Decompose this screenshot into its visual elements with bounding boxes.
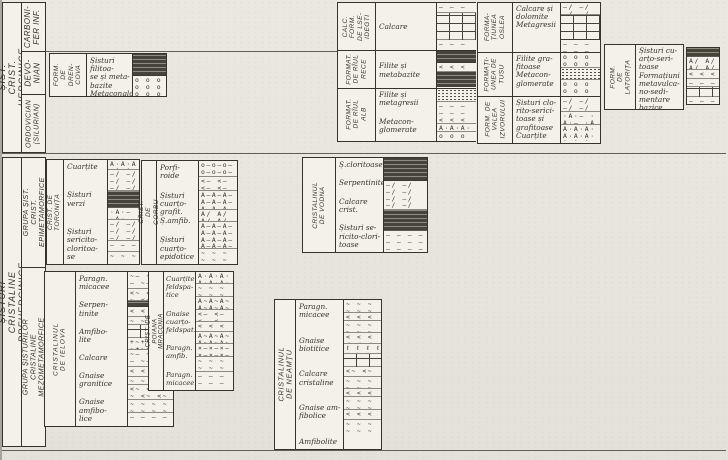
- lithology-column: ~ ~ ~ ~ ~ ~ ~ ~ ~ ~ ~ ~ ~ ~ ~ ~ ~ ~ ~ ~ …: [343, 300, 381, 449]
- lithology-row-label: Gnaise cuarțo- feldspat.: [166, 310, 194, 335]
- formation-label-latorita: FORM. DE LATORIȚA: [609, 60, 631, 95]
- lithology-band-tilde: ~ ~ ~ ~ ~ ~ ~ ~ ~ ~ ~ ~ ~ ~ ~ ~ ~ ~ ~ ~ …: [344, 420, 381, 432]
- lithology-band-veetilde: <~ <~ <~ <~ <~ <~ <~ <~ <~ <~ <~ <~ <~ <…: [344, 367, 381, 377]
- formation-label-cell: FORMAȚI- UNEA DE TUSU: [478, 53, 512, 97]
- lithology-band-xdash: ×—×—×—×—×—×—×—×—×—×—×—×—×—×—×—×—×—×—×—×—…: [196, 344, 233, 357]
- lithology-band-slash: —/ —/ —/ —/ —/ —/ —/ —/ —/ —/ —/ —/ —/ —…: [561, 97, 600, 112]
- lithology-row-label: Formațiuni metavulca- no-sedi- mentare: [639, 72, 682, 105]
- lithology-band-adash: A—A—A—A—A—A—A—A—A—A—A—A—A—A—A—A—A—A—A—A—…: [199, 191, 237, 210]
- lithology-band-circles: o o o o o o o o o o o o o o o o o o o o …: [437, 132, 476, 141]
- lithology-row-label: Calcare cristaline: [299, 370, 342, 386]
- axis-epimetamorphic-label: GRUPA ȘIST. CRIST. EPIMETAMORFICE: [21, 178, 45, 248]
- lithology-row-label: Șisturi filitoa- se și meta- bazite: [90, 57, 131, 90]
- axis-prehercynian-group-cell: ȘISTURI CRISTALINE PREHERCINICE: [2, 157, 22, 447]
- lithology-band-tilde: ~ ~ ~ ~ ~ ~ ~ ~ ~ ~ ~ ~ ~ ~ ~ ~ ~ ~ ~ ~ …: [196, 357, 233, 372]
- lithology-row-label: Calcare: [376, 3, 436, 51]
- lithology-row-label: Gnaise am- fibolice: [299, 404, 342, 420]
- lithology-band-vees: < < < < < < < < < < < < < < < < < < < < …: [344, 410, 381, 420]
- axis-hercynian-group-cell: ȘIST. CRIST. HERCINICE: [2, 2, 22, 153]
- lithology-row-label: Paragn. amfib.: [166, 344, 194, 360]
- lithology-row-label: Filite și metabazite: [376, 51, 436, 89]
- block-latorita: FORM. DE LATORIȚA Șisturi cu- arțo-seri-…: [604, 44, 684, 110]
- lithology-row-label: Filite gra- fitoase Metacon- glomerate: [513, 53, 560, 97]
- axis-period-ordovician: ORDOVICIAN (SILURIAN): [26, 99, 42, 147]
- lithology-band-dark: [384, 210, 427, 231]
- lithology-band-vees: < < < < < < < < < < < < < < < < < < < < …: [344, 333, 381, 344]
- block-corbu: CRIST. DE CORBU Porfi- roide Șisturi cua…: [141, 160, 238, 265]
- lithology-band-aaa: A·A·A·A·A·A·A·A·A·A·A·A·A·A·A·A·A·A·A·A·…: [108, 160, 139, 170]
- lithology-text-cell: Ș.cloritoase Serpentinite Calcare crist.…: [335, 158, 383, 252]
- lithology-band-tilde: ~ ~ ~ ~ ~ ~ ~ ~ ~ ~ ~ ~ ~ ~ ~ ~ ~ ~ ~ ~ …: [344, 321, 381, 333]
- lithology-pattern-column: —/ —/ —/ —/ —/ —/ —/ —/ —/ —/ —/ —/ —/ —…: [560, 3, 600, 143]
- lithology-row-label: Porfi- roide: [160, 164, 197, 180]
- lithology-band-dash: — — — — — — — — — — — — — — — — — — — — …: [196, 372, 233, 384]
- lithology-text-column: Calcare Filite și metabazite Filite și m…: [375, 3, 436, 141]
- lithology-row-label: Gnaise amfibo- lice: [79, 398, 126, 423]
- formation-label-valea-izvorului: FORM. DE VALEA IZVORULUI: [484, 100, 506, 139]
- lithology-band-vees: < < < < < < < < < < < < < < < < < < < < …: [196, 322, 233, 332]
- lithology-band-dark: [437, 51, 476, 63]
- lithology-row-label: Serpentinite: [339, 179, 382, 187]
- axis-period-devonian: DEVO- NIAN: [25, 59, 43, 86]
- lithology-band-dark: [108, 191, 139, 208]
- formation-label-cell: CRIST. DE CORBU: [142, 161, 156, 264]
- lithology-band-dash: — — — — — — — — — — — — — — — — — — — — …: [437, 3, 476, 13]
- formation-label-cell: CRISTALINUL DE NEAMȚU: [275, 300, 295, 449]
- lithology-band-speckle: [437, 89, 476, 102]
- lithology-text-cell: Șisturi cu- arțo-seri- toase Formațiuni …: [635, 45, 683, 109]
- lithology-band-dash: — — — — — — — — — — — — — — — — — — — — …: [384, 231, 427, 250]
- lithology-band-vees: < < < < < < < < < < < < < < < < < < < < …: [344, 389, 381, 397]
- lithology-band-adot: ·A·— ·A·— ·A·— ·A·— ·A·— ·A·— ·A·— ·A·— …: [561, 112, 600, 125]
- axis-period-carboniferous-cell: CARBONI- FER INF.: [21, 2, 46, 52]
- lithology-row-label: Amfibolite: [299, 438, 342, 446]
- lithology-row-label: Șisturi cu- arțo-seri- toase: [639, 47, 682, 72]
- block-drencova: FORM. DE DREN- COVA Șisturi filitoa- se …: [49, 53, 167, 97]
- formation-label-cell: CALC. FORM. DE LSE- IDEGTI: [338, 3, 375, 51]
- lithology-band-tilde: ~ ~ ~ ~ ~ ~ ~ ~ ~ ~ ~ ~ ~ ~ ~ ~ ~ ~ ~ ~ …: [344, 300, 381, 313]
- stratigraphic-correlation-diagram: ȘIST. CRIST. HERCINICE CARBONI- FER INF.…: [0, 0, 728, 460]
- lithology-band-dark: [437, 72, 476, 87]
- lithology-column: < < < < < < < < < < < < < < < < < < < < …: [437, 116, 476, 141]
- lithology-row-label: Calcare și dolomite Metagresii: [513, 3, 560, 53]
- lithology-text-cell: Cuarțite Șisturi verzi Șisturi sericito-…: [63, 160, 107, 264]
- formation-label-oslea: FORMA- ȚIUNEA OSLEA: [484, 13, 506, 41]
- axis-epimetamorphic-cell: GRUPA ȘIST. CRIST. EPIMETAMORFICE: [21, 157, 46, 268]
- lithology-row-label: Șisturi sericito- cloritoa- se: [67, 228, 106, 261]
- lithology-band-dash: — — — — — — — — — — — — — — — — — — — — …: [561, 40, 600, 53]
- lithology-band-dark: [133, 54, 166, 76]
- lithology-band-atilde: A~A~A~A~A~A~A~A~A~A~A~A~A~A~A~A~A~A~A~A~…: [196, 332, 233, 344]
- lithology-text-cell: Cuarțite feldspa- tice Gnaise cuarțo- fe…: [163, 272, 195, 390]
- lithology-band-tilde: ~ ~ ~ ~ ~ ~ ~ ~ ~ ~ ~ ~ ~ ~ ~ ~ ~ ~ ~ ~ …: [344, 397, 381, 410]
- lithology-row-label: Cuarțite: [67, 163, 106, 171]
- lithology-band-brick: [561, 15, 600, 40]
- formation-label-tusu: FORMAȚI- UNEA DE TUSU: [484, 57, 506, 92]
- lithology-column: —/ —/ —/ —/ —/ —/ —/ —/ —/ —/ —/ —/ —/ —…: [561, 97, 600, 142]
- lithology-band-circles: o o o o o o o o o o o o o o o o o o o o …: [133, 76, 166, 96]
- lithology-band-tilde: ~ ~ ~ ~ ~ ~ ~ ~ ~ ~ ~ ~ ~ ~ ~ ~ ~ ~ ~ ~ …: [128, 400, 173, 413]
- lithology-band-dash: — — — — — — — — — — — — — — — — — — — — …: [437, 40, 476, 49]
- lithology-band-vees: < < < < < < < < < < < < < < < < < < < < …: [437, 63, 476, 72]
- formation-label-cell: CRIST. DE TORONIȚA: [47, 160, 63, 264]
- lithology-band-brick: [437, 13, 476, 40]
- lithology-band-vees: < < < < < < < < < < < < < < < < < < < < …: [437, 116, 476, 124]
- formation-label-column: FORMA- ȚIUNEA OSLEA FORMAȚI- UNEA DE TUS…: [478, 3, 512, 143]
- lithology-column: A·A·A·A·A·A·A·A·A·A·A·A·A·A·A·A·A·A·A·A·…: [107, 160, 139, 264]
- block-neamtu: CRISTALINUL DE NEAMȚU Paragn. micacee Gn…: [274, 299, 382, 450]
- formation-label-cell: FORM. DE LATORIȚA: [605, 45, 635, 109]
- lithology-band-aslash: A/ A/ A/ A/ A/ A/ A/ A/ A/ A/ A/ A/ A/ A…: [687, 57, 719, 70]
- lithology-column: o o o o o o o o o o o o o o o o o o o o …: [561, 53, 600, 97]
- block-raul-formations: CALC. FORM. DE LSE- IDEGTI FORMAT. DE RÎ…: [337, 2, 476, 142]
- lithology-row-label: Șisturi se- ricito-clori- toase: [339, 224, 382, 249]
- formation-label-cell: FORMA- ȚIUNEA OSLEA: [478, 3, 512, 53]
- lithology-band-aaa: A·A·A·A·A·A·A·A·A·A·A·A·A·A·A·A·A·A·A·A·…: [561, 125, 600, 141]
- lithology-text-cell: Paragn. micacee Gnaise biotitice Calcare…: [295, 300, 343, 449]
- lithology-pattern-column: — — — — — — — — — — — — — — — — — — — — …: [436, 3, 476, 141]
- lithology-band-dark: [687, 48, 719, 57]
- formation-label-drencova: FORM. DE DREN- COVA: [53, 63, 83, 86]
- lithology-row-label: Gnaise granitice: [79, 372, 126, 388]
- axis-period-devonian-cell: DEVO- NIAN: [21, 51, 46, 95]
- lithology-band-tilde: ~ ~ ~ ~ ~ ~ ~ ~ ~ ~ ~ ~ ~ ~ ~ ~ ~ ~ ~ ~ …: [108, 252, 139, 262]
- formation-label-neamtu: CRISTALINUL DE NEAMȚU: [277, 347, 293, 402]
- block-oslea-tusu-izvorului: FORMA- ȚIUNEA OSLEA FORMAȚI- UNEA DE TUS…: [477, 2, 601, 144]
- lithology-band-circledash: o—o—o—o—o—o—o—o—o—o—o—o—o—o—o—o—o—o—o—o—…: [199, 161, 237, 177]
- lithology-band-adot: ·A·— ·A·— ·A·— ·A·— ·A·— ·A·— ·A·— ·A·— …: [108, 208, 139, 220]
- formation-label-cell: FORM. DE DREN- COVA: [50, 54, 86, 96]
- lithology-column: —/ —/ —/ —/ —/ —/ —/ —/ —/ —/ —/ —/ —/ —…: [383, 158, 427, 252]
- lithology-column: o—o—o—o—o—o—o—o—o—o—o—o—o—o—o—o—o—o—o—o—…: [198, 161, 237, 264]
- lithology-column-latorita: A/ A/ A/ A/ A/ A/ A/ A/ A/ A/ A/ A/ A/ A…: [686, 47, 720, 105]
- formation-label-riul-alb: FORMAT. DE RÎUL ALB: [345, 99, 367, 130]
- lithology-text-cell: Șisturi filitoa- se și meta- bazite Meta…: [86, 54, 132, 96]
- lithology-text-cell: Porfi- roide Șisturi cuarțo- grafit. Ș.a…: [156, 161, 198, 264]
- lithology-row-label: Metaconglom.: [90, 90, 131, 96]
- lithology-text-cell: Paragn. micacee Serpen- tinite Amfibo- l…: [75, 272, 127, 426]
- lithology-row-label: Filite și metagresii: [376, 89, 436, 116]
- lithology-row-label: Ș.cloritoase: [339, 161, 382, 169]
- axis-mezometamorphic-label: GRUPA ȘISTURILOR CRISTALINE MEZOMETAMORF…: [21, 317, 45, 396]
- lithology-band-veedash: <— <— <— <— <— <— <— <— <— <— <— <— <— <…: [196, 310, 233, 322]
- lithology-band-aaa: A·A·A·A·A·A·A·A·A·A·A·A·A·A·A·A·A·A·A·A·…: [437, 124, 476, 132]
- formation-label-ielova: CRISTALINUL DE IELOVA: [53, 322, 68, 375]
- lithology-band-vees: < < < < < < < < < < < < < < < < < < < < …: [687, 70, 719, 79]
- lithology-band-tilde: ~ ~ ~ ~ ~ ~ ~ ~ ~ ~ ~ ~ ~ ~ ~ ~ ~ ~ ~ ~ …: [199, 249, 237, 262]
- block-toronita: CRIST. DE TORONIȚA Cuarțite Șisturi verz…: [46, 159, 140, 265]
- lithology-band-dash: — — — — — — — — — — — — — — — — — — — — …: [108, 241, 139, 252]
- lithology-band-circles: o o o o o o o o o o o o o o o o o o o o …: [561, 53, 600, 68]
- formation-label-calc: CALC. FORM. DE LSE- IDEGTI: [342, 8, 372, 45]
- lithology-column: A·A·A·A·A·A·A·A·A·A·A·A·A·A·A·A·A·A·A·A·…: [195, 272, 233, 390]
- lithology-band-dash: — — — — — — — — — — — — — — — — — — — — …: [128, 413, 173, 423]
- lithology-row-label: Metacon- glomerate: [376, 116, 436, 141]
- lithology-band-atilde: A~A~A~A~A~A~A~A~A~A~A~A~A~A~A~A~A~A~A~A~…: [196, 297, 233, 310]
- lithology-band-veedash: <— <— <— <— <— <— <— <— <— <— <— <— <— <…: [199, 177, 237, 191]
- formation-label-cell: FORMAT. DE RÎUL RECE: [338, 51, 375, 89]
- lithology-band-tilde: ~ ~ ~ ~ ~ ~ ~ ~ ~ ~ ~ ~ ~ ~ ~ ~ ~ ~ ~ ~ …: [196, 284, 233, 297]
- lithology-band-vees: < < < < < < < < < < < < < < < < < < < < …: [344, 313, 381, 321]
- formation-label-vodna: CRISTALINUL DE VODNA: [312, 182, 327, 229]
- lithology-row-label: Calcare: [79, 354, 126, 362]
- lithology-row-label: Cuarțite feldspa- tice: [166, 275, 194, 300]
- lithology-band-slash: —/ —/ —/ —/ —/ —/ —/ —/ —/ —/ —/ —/ —/ —…: [108, 170, 139, 191]
- lithology-row-label: Paragn. micacee: [166, 371, 194, 387]
- lithology-band-dark: [384, 158, 427, 181]
- lithology-band-brick: [687, 87, 719, 97]
- lithology-column: —/ —/ —/ —/ —/ —/ —/ —/ —/ —/ —/ —/ —/ —…: [561, 3, 600, 53]
- correlation-line-base-hercynian: [2, 153, 726, 154]
- formation-label-cell: CRISTALINUL DE VODNA: [303, 158, 335, 252]
- formation-label-cell: FORMAT. DE RÎUL ALB: [338, 89, 375, 140]
- lithology-text-column: Calcare și dolomite Metagresii Filite gr…: [512, 3, 560, 143]
- lithology-band-dash: — — — — — — — — — — — — — — — — — — — — …: [687, 97, 719, 103]
- lithology-row-label: Șisturi cuarțo- epidotice: [160, 236, 197, 261]
- axis-mezometamorphic-cell: GRUPA ȘISTURILOR CRISTALINE MEZOMETAMORF…: [21, 267, 46, 447]
- lithology-band-adash: A—A—A—A—A—A—A—A—A—A—A—A—A—A—A—A—A—A—A—A—…: [199, 222, 237, 249]
- formation-label-riul-rece: FORMAT. DE RÎUL RECE: [345, 54, 367, 85]
- lithology-column: — — — — — — — — — — — — — — — — — — — — …: [437, 3, 476, 51]
- lithology-band-slash: —/ —/ —/ —/ —/ —/ —/ —/ —/ —/ —/ —/ —/ —…: [561, 3, 600, 15]
- lithology-band-slash: —/ —/ —/ —/ —/ —/ —/ —/ —/ —/ —/ —/ —/ —…: [108, 220, 139, 241]
- lithology-column: o o o o o o o o o o o o o o o o o o o o …: [132, 54, 166, 96]
- formation-label-column: CALC. FORM. DE LSE- IDEGTI FORMAT. DE RÎ…: [338, 3, 375, 141]
- correlation-line-devonian: [45, 51, 337, 52]
- lithology-band-aslash: A/ A/ A/ A/ A/ A/ A/ A/ A/ A/ A/ A/ A/ A…: [199, 210, 237, 222]
- lithology-band-tilde: ~ ~ ~ ~ ~ ~ ~ ~ ~ ~ ~ ~ ~ ~ ~ ~ ~ ~ ~ ~ …: [344, 377, 381, 389]
- lithology-band-slash: —/ —/ —/ —/ —/ —/ —/ —/ —/ —/ —/ —/ —/ —…: [384, 181, 427, 210]
- lithology-row-label: Șisturi verzi: [67, 191, 106, 207]
- axis-period-ordovician-cell: ORDOVICIAN (SILURIAN): [21, 94, 46, 153]
- formation-label-cell: CRISTALINUL DE IELOVA: [45, 272, 75, 426]
- lithology-row-label: Paragn. micacee: [299, 303, 342, 319]
- lithology-row-label: Șisturi clo- rito-serici- toase și grafi…: [513, 97, 560, 142]
- lithology-row-label: bazice: [639, 104, 682, 109]
- lithology-band-aaa: A·A·A·A·A·A·A·A·A·A·A·A·A·A·A·A·A·A·A·A·…: [196, 272, 233, 284]
- lithology-row-label: Paragn. micacee: [79, 275, 126, 291]
- block-poiana-mraconia: CRIST. DE POIANA MRACONIA Cuarțite felds…: [148, 271, 234, 391]
- lithology-row-label: Serpen- tinite: [79, 301, 126, 317]
- formation-label-cell: FORM. DE VALEA IZVORULUI: [478, 97, 512, 142]
- formation-label-cell: CRIST. DE POIANA MRACONIA: [149, 272, 163, 390]
- lithology-band-lls: ℓ ℓ ℓ ℓ ℓ ℓ ℓ ℓ ℓ ℓ ℓ ℓ ℓ ℓ ℓ ℓ ℓ ℓ ℓ ℓ …: [344, 344, 381, 354]
- lithology-row-label: Gnaise biotitice: [299, 337, 342, 353]
- lithology-band-brick: [344, 354, 381, 367]
- lithology-column: — — — — — — — — — — — — — — — — — — — — …: [437, 89, 476, 116]
- lithology-row-label: Calcare crist.: [339, 198, 382, 214]
- lithology-band-speckle: [561, 68, 600, 80]
- lithology-row-label: Șisturi cuarțo- grafit. Ș.amfib.: [160, 192, 197, 225]
- formation-label-toronita: CRIST. DE TORONIȚA: [48, 193, 63, 230]
- lithology-band-dash: — — — — — — — — — — — — — — — — — — — — …: [437, 102, 476, 115]
- lithology-band-dash: — — — — — — — — — — — — — — — — — — — — …: [687, 79, 719, 87]
- axis-period-carboniferous: CARBONI- FER INF.: [25, 6, 43, 48]
- block-vodna: CRISTALINUL DE VODNA Ș.cloritoase Serpen…: [302, 157, 428, 253]
- lithology-row-label: Amfibo- lite: [79, 328, 126, 344]
- lithology-column: < < < < < < < < < < < < < < < < < < < < …: [437, 51, 476, 89]
- lithology-band-circles: o o o o o o o o o o o o o o o o o o o o …: [561, 80, 600, 95]
- bottom-rule: [2, 450, 726, 451]
